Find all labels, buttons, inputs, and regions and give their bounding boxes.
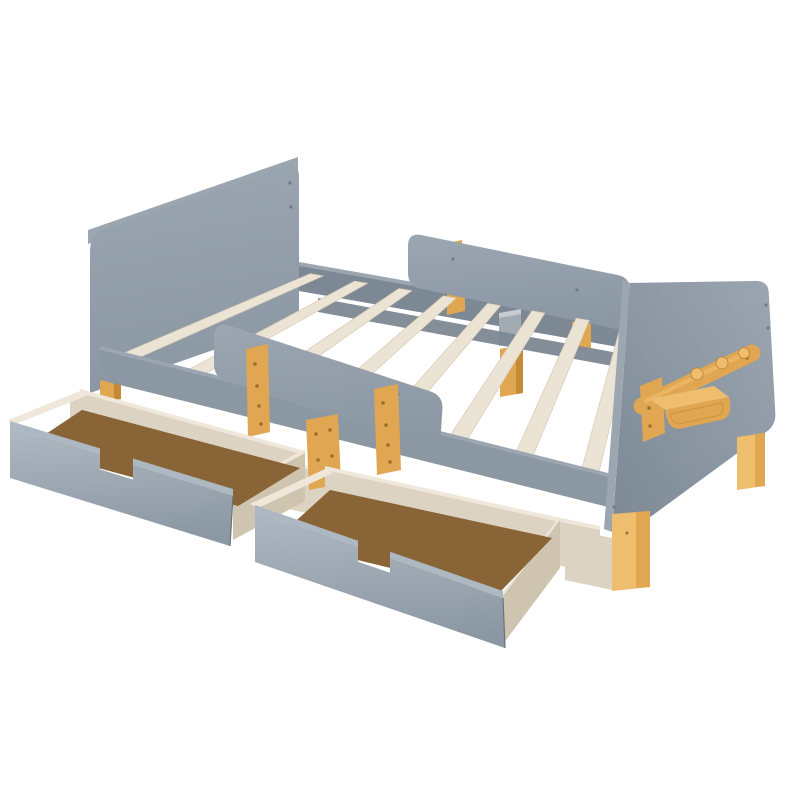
hook-peg: [716, 357, 728, 369]
bracket-screw: [328, 428, 332, 432]
bracket-screw: [257, 404, 261, 408]
footboard-screw: [766, 326, 769, 329]
bracket-screw: [388, 460, 392, 464]
headboard-screw: [289, 205, 292, 208]
headboard-screw: [288, 181, 291, 184]
bracket-screw: [386, 443, 390, 447]
footboard-rear-leg: [737, 433, 765, 490]
bracket-screw: [253, 362, 257, 366]
leg-side: [636, 511, 650, 588]
leg-side: [755, 433, 765, 487]
footboard-screw: [764, 303, 767, 306]
leg-screw: [626, 532, 629, 535]
bracket-screw: [314, 432, 318, 436]
bracket-face: [246, 344, 270, 437]
near-guardrail-bracket-right: [374, 384, 401, 475]
hook-rail-screw: [647, 406, 650, 409]
footboard-front-leg: [612, 511, 650, 591]
hook-peg: [691, 368, 703, 380]
shelf-screw: [648, 424, 651, 427]
bracket-screw: [316, 458, 320, 462]
far-guardrail-screw: [451, 257, 454, 260]
bracket-screw: [330, 454, 334, 458]
product-photo-toddler-bed: [0, 0, 800, 800]
storage-box-right-end: [565, 528, 612, 590]
footboard-screw: [612, 505, 615, 508]
bracket-screw: [255, 384, 259, 388]
bed-illustration: [0, 0, 800, 800]
bracket-screw: [381, 401, 385, 405]
bracket-screw: [259, 422, 263, 426]
bracket-screw: [384, 423, 388, 427]
hook-peg: [739, 348, 750, 359]
near-guardrail-bracket-left: [246, 344, 270, 437]
far-guardrail-screw: [575, 288, 578, 291]
bracket-face: [374, 384, 401, 475]
